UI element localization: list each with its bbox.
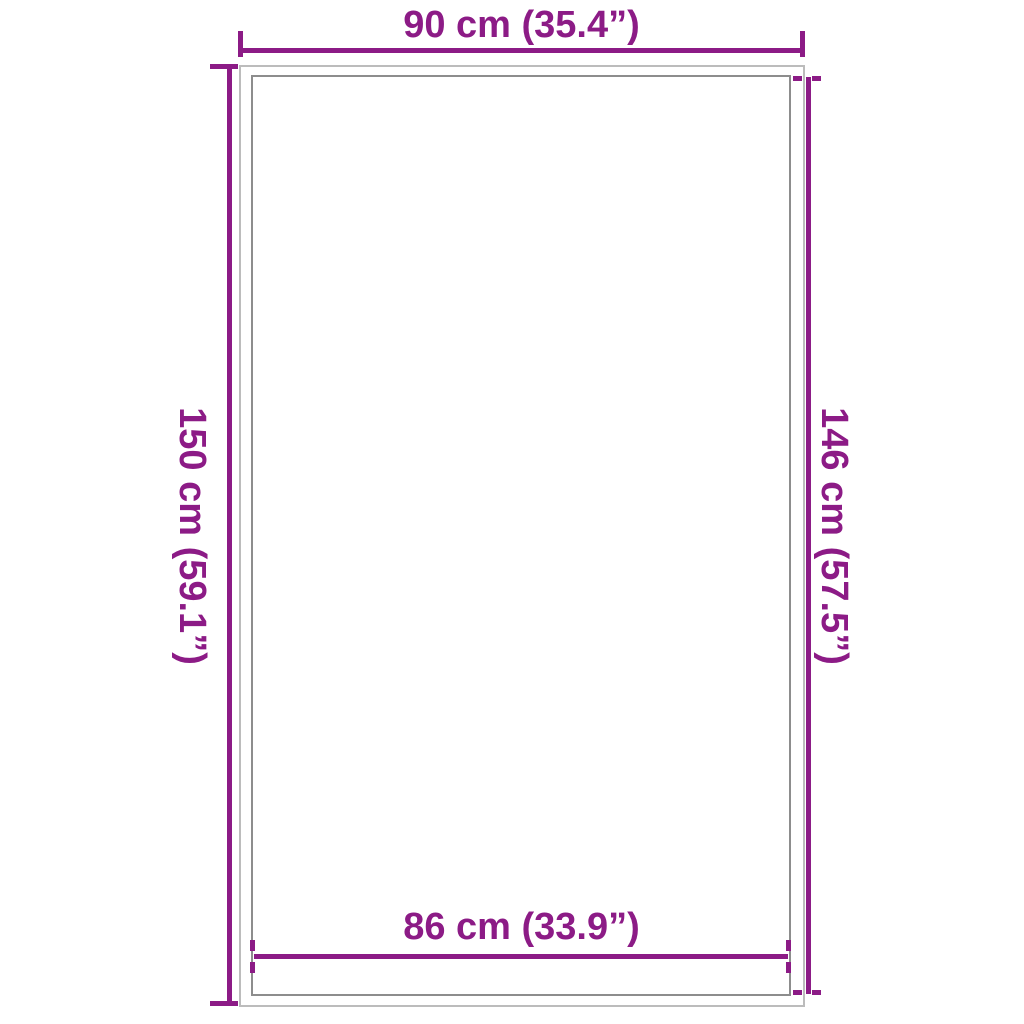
dim-tick-bottom-right-dash [786, 962, 791, 973]
dim-line-top [240, 48, 803, 53]
product-dimension-diagram: 90 cm (35.4”) 150 cm (59.1”) 146 cm (57.… [0, 0, 1024, 1024]
dim-line-bottom [254, 954, 788, 959]
dim-tick-top-left [238, 31, 243, 57]
dim-tick-right-bottom-dash [812, 990, 821, 995]
dim-tick-left-bottom [210, 1001, 238, 1006]
inner-rectangle [251, 75, 791, 996]
dim-label-top-width: 90 cm (35.4”) [240, 5, 803, 45]
dim-tick-bottom-left-dash [250, 962, 255, 973]
dim-tick-bottom-right-dash [786, 940, 791, 951]
dim-label-left-height: 150 cm (59.1”) [172, 407, 212, 665]
dim-tick-bottom-left-dash [250, 940, 255, 951]
dim-line-left [227, 66, 232, 1006]
dim-tick-right-top-dash [793, 76, 802, 81]
dim-label-right-inner-height: 146 cm (57.5”) [814, 407, 854, 665]
dim-line-right [806, 77, 811, 994]
dim-tick-top-right [800, 31, 805, 57]
dim-tick-right-top-dash [812, 76, 821, 81]
dim-label-bottom-inner-width: 86 cm (33.9”) [253, 907, 790, 947]
dim-tick-right-bottom-dash [793, 990, 802, 995]
dim-tick-left-top [210, 64, 238, 69]
